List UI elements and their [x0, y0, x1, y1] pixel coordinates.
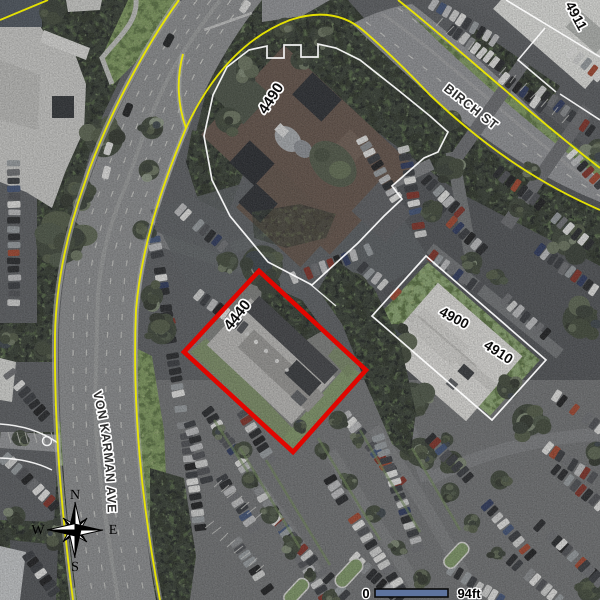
svg-text:0: 0 — [362, 586, 369, 600]
svg-text:W: W — [31, 523, 45, 538]
svg-text:E: E — [109, 523, 118, 538]
svg-text:N: N — [70, 488, 80, 503]
svg-text:94ft: 94ft — [457, 586, 481, 600]
svg-text:S: S — [71, 560, 79, 575]
